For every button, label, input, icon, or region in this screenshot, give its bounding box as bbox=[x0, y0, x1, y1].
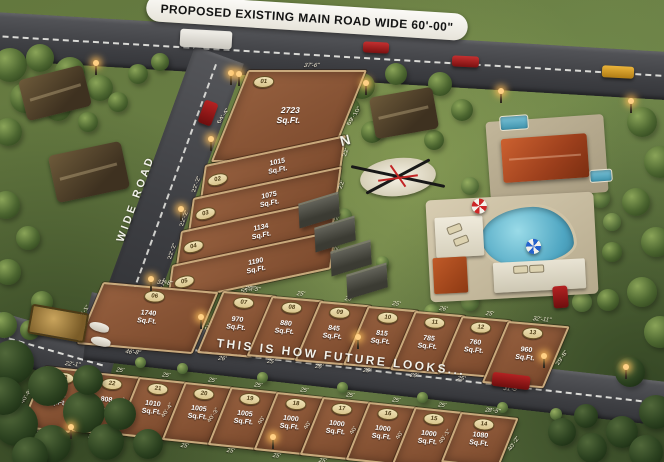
plot-area: 1015Sq.Ft. bbox=[268, 157, 288, 177]
street-lamp bbox=[95, 64, 97, 75]
tree bbox=[572, 292, 592, 312]
plot-area: 1134Sq.Ft. bbox=[251, 222, 271, 242]
orange-tiled-roof bbox=[501, 133, 590, 183]
street-lamp bbox=[70, 428, 72, 439]
tree bbox=[597, 289, 619, 311]
tree bbox=[108, 92, 128, 112]
street-lamp bbox=[630, 102, 632, 113]
street-lamp bbox=[200, 318, 202, 329]
plot-area-unit: Sq.Ft. bbox=[274, 327, 295, 336]
plot-number-badge: 10 bbox=[376, 311, 399, 325]
plot-area-unit: Sq.Ft. bbox=[464, 346, 485, 355]
plot-dim-top: 25'-5" bbox=[244, 286, 262, 293]
plot-number-badge: 21 bbox=[146, 382, 169, 396]
small-pool bbox=[589, 168, 613, 183]
street-lamp bbox=[500, 92, 502, 103]
tree bbox=[627, 277, 657, 307]
tree bbox=[16, 226, 40, 250]
small-pool bbox=[499, 114, 529, 131]
plot-area-unit: Sq.Ft. bbox=[417, 437, 438, 447]
street-lamp bbox=[180, 210, 182, 221]
plot-number-badge: 12 bbox=[469, 321, 492, 335]
plot-area: 1080Sq.Ft. bbox=[469, 431, 491, 448]
plot-area: 1000Sq.Ft. bbox=[371, 425, 393, 442]
plot-area: 970Sq.Ft. bbox=[225, 316, 247, 333]
plot-area-unit: Sq.Ft. bbox=[279, 422, 300, 432]
tree bbox=[177, 363, 188, 374]
plot-area-unit: Sq.Ft. bbox=[514, 354, 535, 363]
plot-dim-top: 28'-5" bbox=[484, 408, 502, 415]
plot-dim-bottom: 46'-8" bbox=[124, 349, 142, 356]
tree bbox=[622, 188, 650, 216]
plot-area: 880Sq.Ft. bbox=[274, 320, 296, 337]
plot-number-badge: 07 bbox=[232, 296, 255, 310]
street-lamp bbox=[543, 357, 545, 368]
street-lamp bbox=[357, 338, 359, 349]
plot-number-badge: 01 bbox=[252, 76, 275, 88]
plot-area-unit: Sq.Ft. bbox=[322, 332, 343, 341]
plot-area: 1010Sq.Ft. bbox=[141, 400, 163, 417]
tree bbox=[461, 177, 479, 195]
plot-area: 845Sq.Ft. bbox=[322, 325, 344, 342]
plot-dim-top: 37'-6" bbox=[303, 63, 321, 69]
plot-area-unit: Sq.Ft. bbox=[233, 417, 254, 427]
pool-lounger bbox=[529, 264, 544, 273]
hay-wagon bbox=[27, 304, 89, 344]
plot-area: 1190Sq.Ft. bbox=[246, 256, 266, 276]
pool-villa bbox=[425, 192, 598, 303]
plot-area: 1000Sq.Ft. bbox=[325, 420, 347, 437]
tree bbox=[135, 357, 146, 368]
plot-area: 1000Sq.Ft. bbox=[279, 415, 301, 432]
street-lamp bbox=[238, 75, 240, 86]
plot-number-badge: 16 bbox=[376, 407, 399, 421]
forest-tree bbox=[104, 398, 136, 430]
street-lamp bbox=[272, 438, 274, 449]
plot-area: 785Sq.Ft. bbox=[417, 334, 439, 351]
ox bbox=[90, 335, 112, 348]
plot-number-badge: 09 bbox=[328, 306, 351, 320]
car-red-main-road bbox=[363, 41, 390, 53]
car-yellow-main-road bbox=[602, 65, 635, 79]
street-lamp bbox=[365, 84, 367, 95]
plot-number-badge: 22 bbox=[100, 377, 123, 391]
tree bbox=[337, 382, 348, 393]
tiled-roof-house bbox=[485, 114, 608, 200]
tree bbox=[603, 213, 621, 231]
plot-area-unit: Sq.Ft. bbox=[225, 323, 246, 332]
plot-area-unit: Sq.Ft. bbox=[371, 432, 392, 442]
plot-number-badge: 15 bbox=[422, 412, 445, 426]
plot-number-badge: 03 bbox=[195, 205, 216, 221]
street-lamp bbox=[625, 368, 627, 379]
plot-area-unit: Sq.Ft. bbox=[325, 427, 346, 437]
tree bbox=[385, 63, 407, 85]
plot-area: 1005Sq.Ft. bbox=[233, 410, 255, 427]
plot-number-badge: 18 bbox=[284, 397, 307, 411]
plot-number-badge: 08 bbox=[280, 301, 303, 315]
forest-tree bbox=[73, 365, 103, 395]
tree bbox=[151, 53, 169, 71]
plot-dim-bottom: 25' bbox=[317, 458, 327, 462]
pool-lounger bbox=[513, 265, 528, 274]
plot-area-unit: Sq.Ft. bbox=[187, 412, 208, 422]
forest-tree bbox=[615, 357, 645, 387]
delivery-truck bbox=[180, 29, 233, 50]
forest-tree bbox=[133, 429, 163, 459]
tree bbox=[78, 112, 98, 132]
tree bbox=[417, 392, 428, 403]
plot-area-unit: Sq.Ft. bbox=[141, 407, 162, 417]
tree bbox=[424, 130, 444, 150]
plot-number-badge: 02 bbox=[207, 171, 228, 187]
forest-tree bbox=[574, 404, 598, 428]
tree bbox=[602, 242, 622, 262]
plot-area: 2723Sq.Ft. bbox=[275, 106, 302, 125]
forest-tree bbox=[28, 366, 68, 406]
plot-number-badge: 11 bbox=[423, 316, 446, 330]
villa-building bbox=[493, 258, 586, 293]
plot-number-badge: 17 bbox=[330, 402, 353, 416]
car-red-villa bbox=[552, 285, 569, 308]
tree bbox=[128, 64, 148, 84]
plot-number-badge: 04 bbox=[183, 239, 204, 255]
street-lamp bbox=[150, 280, 152, 291]
plot-area-unit: Sq.Ft. bbox=[136, 317, 157, 326]
plot-dim-top: 32'-11" bbox=[531, 316, 552, 323]
tree bbox=[451, 99, 473, 121]
plot-number-badge: 06 bbox=[143, 290, 166, 304]
plot-dim-top: 32'-8" bbox=[156, 280, 174, 287]
plot-area: 1740Sq.Ft. bbox=[136, 309, 158, 326]
ox bbox=[88, 320, 110, 334]
plot-area: 960Sq.Ft. bbox=[514, 346, 536, 363]
plot-area-unit: Sq.Ft. bbox=[417, 342, 438, 351]
forest-tree bbox=[629, 435, 663, 462]
villa-orange-wall bbox=[432, 256, 468, 294]
tree bbox=[26, 44, 54, 72]
plot-area: 1005Sq.Ft. bbox=[187, 405, 209, 422]
plot-number-badge: 13 bbox=[521, 326, 544, 340]
plot-number-badge: 19 bbox=[238, 392, 261, 406]
street-lamp bbox=[210, 140, 212, 151]
tree bbox=[641, 227, 664, 257]
plot-area: 760Sq.Ft. bbox=[464, 338, 486, 355]
plot-area-unit: Sq.Ft. bbox=[275, 116, 300, 126]
tree bbox=[257, 372, 268, 383]
compass-rose: N bbox=[360, 158, 436, 196]
street-lamp bbox=[230, 74, 232, 85]
plot-area: 1000Sq.Ft. bbox=[417, 430, 439, 447]
plot-area: 1075Sq.Ft. bbox=[260, 190, 280, 210]
car-red-main-road bbox=[452, 55, 480, 67]
plot-number-badge: 05 bbox=[174, 273, 195, 289]
forest-tree bbox=[577, 433, 607, 462]
plot-area-unit: Sq.Ft. bbox=[370, 337, 391, 346]
plot-number-badge: 20 bbox=[192, 387, 215, 401]
plot-number-badge: 14 bbox=[472, 417, 495, 431]
plot-area: 815Sq.Ft. bbox=[370, 329, 392, 346]
plot-area-unit: Sq.Ft. bbox=[469, 439, 490, 449]
forest-tree bbox=[548, 418, 576, 446]
site-plan-render: 012723Sq.Ft.37'-6"64'-4"69'-10"44'-10"02… bbox=[0, 0, 664, 462]
